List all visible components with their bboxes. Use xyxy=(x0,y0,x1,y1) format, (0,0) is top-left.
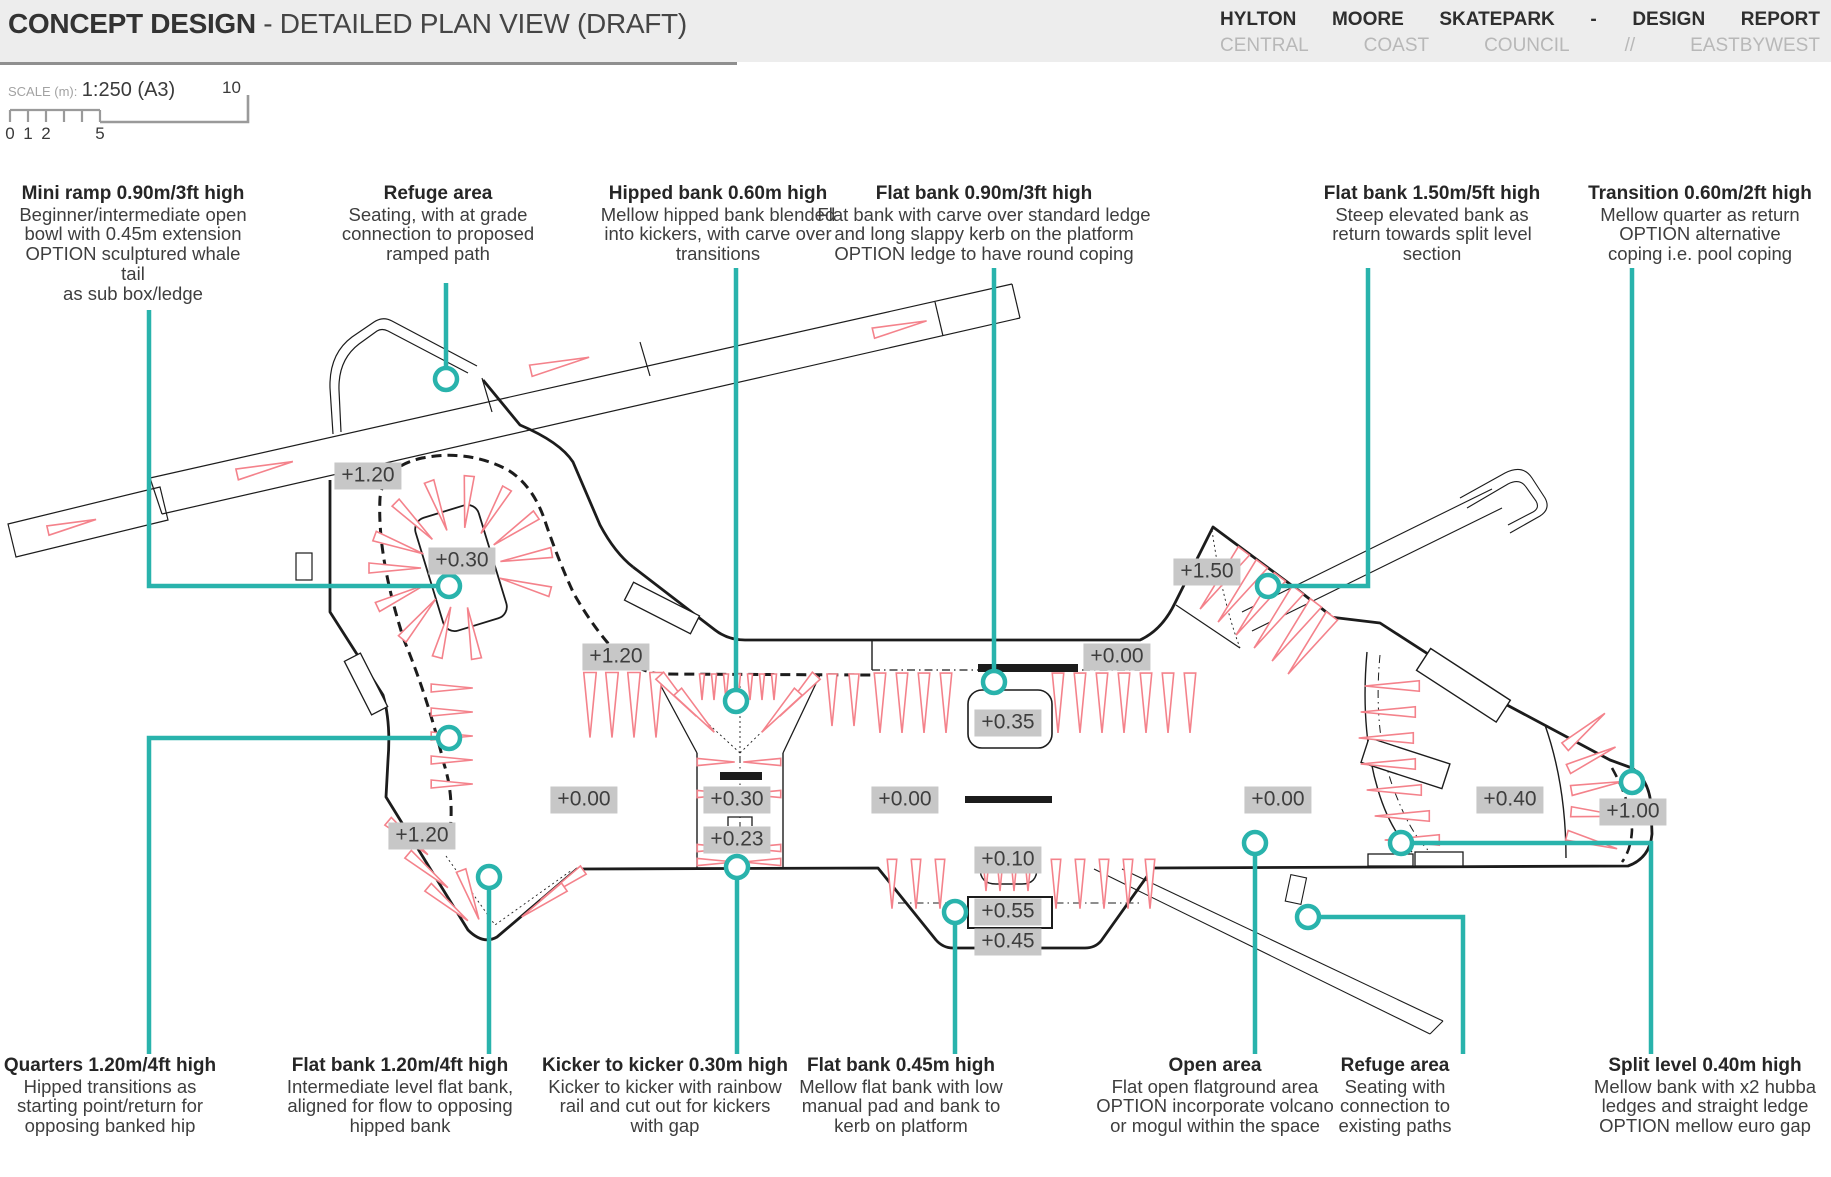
annotation-flat-bank-045: Flat bank 0.45m highMellow flat bank wit… xyxy=(776,1056,1026,1136)
ramped-path-band xyxy=(8,284,1020,557)
annotation-refuge-bottom: Refuge areaSeating with connection to ex… xyxy=(1313,1056,1478,1136)
annotation-title: Flat bank 0.45m high xyxy=(776,1056,1026,1077)
annotation-flat-bank-120: Flat bank 1.20m/4ft highIntermediate lev… xyxy=(250,1056,550,1136)
level-label: +1.00 xyxy=(1599,799,1666,826)
level-label: +1.20 xyxy=(582,644,649,671)
deck-ledge-2 xyxy=(344,653,387,715)
annotation-kicker: Kicker to kicker 0.30m highKicker to kic… xyxy=(523,1056,808,1136)
annotation-body: Steep elevated bank as return towards sp… xyxy=(1307,205,1557,265)
annotation-refuge-top: Refuge areaSeating, with at grade connec… xyxy=(323,184,553,264)
leader-marker xyxy=(478,866,500,888)
annotation-body: Flat bank with carve over standard ledge… xyxy=(799,205,1169,265)
annotation-title: Refuge area xyxy=(1313,1056,1478,1077)
level-label: +0.45 xyxy=(974,929,1041,956)
annotation-title: Quarters 1.20m/4ft high xyxy=(0,1056,225,1077)
annotation-flat-bank-150: Flat bank 1.50m/5ft highSteep elevated b… xyxy=(1307,184,1557,264)
annotation-split-level: Split level 0.40m highMellow bank with x… xyxy=(1578,1056,1831,1136)
leader-marker xyxy=(944,901,966,923)
annotation-title: Kicker to kicker 0.30m high xyxy=(523,1056,808,1077)
level-label: +0.10 xyxy=(974,847,1041,874)
level-label: +1.20 xyxy=(334,463,401,490)
level-label: +0.35 xyxy=(974,710,1041,737)
annotation-body: Beginner/intermediate open bowl with 0.4… xyxy=(13,205,253,305)
level-label: +0.30 xyxy=(703,787,770,814)
rainbow-rail xyxy=(720,772,762,780)
leader-marker xyxy=(1257,575,1279,597)
level-label: +0.23 xyxy=(703,827,770,854)
plan-drawing xyxy=(0,0,1831,1177)
transition-wedges xyxy=(47,316,1624,925)
leader-marker xyxy=(435,368,457,390)
leader-marker xyxy=(438,575,460,597)
annotation-title: Split level 0.40m high xyxy=(1578,1056,1831,1077)
level-label: +0.40 xyxy=(1476,787,1543,814)
annotation-quarters: Quarters 1.20m/4ft highHipped transition… xyxy=(0,1056,225,1136)
flat-ledge xyxy=(965,796,1052,803)
leader-marker xyxy=(725,690,747,712)
annotation-title: Refuge area xyxy=(323,184,553,205)
annotation-body: Seating, with at grade connection to pro… xyxy=(323,205,553,265)
leader-marker xyxy=(726,856,748,878)
annotation-title: Flat bank 0.90m/3ft high xyxy=(799,184,1169,205)
level-label: +1.50 xyxy=(1173,559,1240,586)
leader-marker xyxy=(1297,906,1319,928)
leader-marker xyxy=(983,671,1005,693)
annotation-mini-ramp: Mini ramp 0.90m/3ft highBeginner/interme… xyxy=(13,184,253,304)
annotation-title: Mini ramp 0.90m/3ft high xyxy=(13,184,253,205)
deck-ledge-3 xyxy=(296,553,312,580)
leader-marker xyxy=(1390,832,1412,854)
hubba-ledge-1 xyxy=(1368,854,1413,866)
annotation-body: Kicker to kicker with rainbow rail and c… xyxy=(523,1077,808,1137)
leader-marker xyxy=(1621,771,1643,793)
level-label: +0.00 xyxy=(871,787,938,814)
level-label: +0.30 xyxy=(428,548,495,575)
existing-path-bottom-right xyxy=(1094,869,1443,1034)
annotation-body: Mellow flat bank with low manual pad and… xyxy=(776,1077,1026,1137)
annotation-transition-060: Transition 0.60m/2ft highMellow quarter … xyxy=(1575,184,1825,264)
leader-marker xyxy=(438,727,460,749)
annotation-body: Mellow quarter as return OPTION alternat… xyxy=(1575,205,1825,265)
hubba-ledge-2 xyxy=(1415,852,1463,866)
annotation-body: Hipped transitions as starting point/ret… xyxy=(0,1077,225,1137)
annotation-body: Mellow bank with x2 hubba ledges and str… xyxy=(1578,1077,1831,1137)
annotation-flat-bank-090: Flat bank 0.90m/3ft highFlat bank with c… xyxy=(799,184,1169,264)
annotation-body: Seating with connection to existing path… xyxy=(1313,1077,1478,1137)
annotation-title: Transition 0.60m/2ft high xyxy=(1575,184,1825,205)
level-label: +0.00 xyxy=(1244,787,1311,814)
level-label: +0.55 xyxy=(974,899,1041,926)
split-ledge-2 xyxy=(1417,648,1511,722)
level-label: +0.00 xyxy=(550,787,617,814)
annotation-title: Flat bank 1.50m/5ft high xyxy=(1307,184,1557,205)
level-label: +0.00 xyxy=(1083,644,1150,671)
leader-marker xyxy=(1244,832,1266,854)
level-label: +1.20 xyxy=(388,823,455,850)
annotation-body: Intermediate level flat bank, aligned fo… xyxy=(250,1077,550,1137)
annotation-title: Flat bank 1.20m/4ft high xyxy=(250,1056,550,1077)
